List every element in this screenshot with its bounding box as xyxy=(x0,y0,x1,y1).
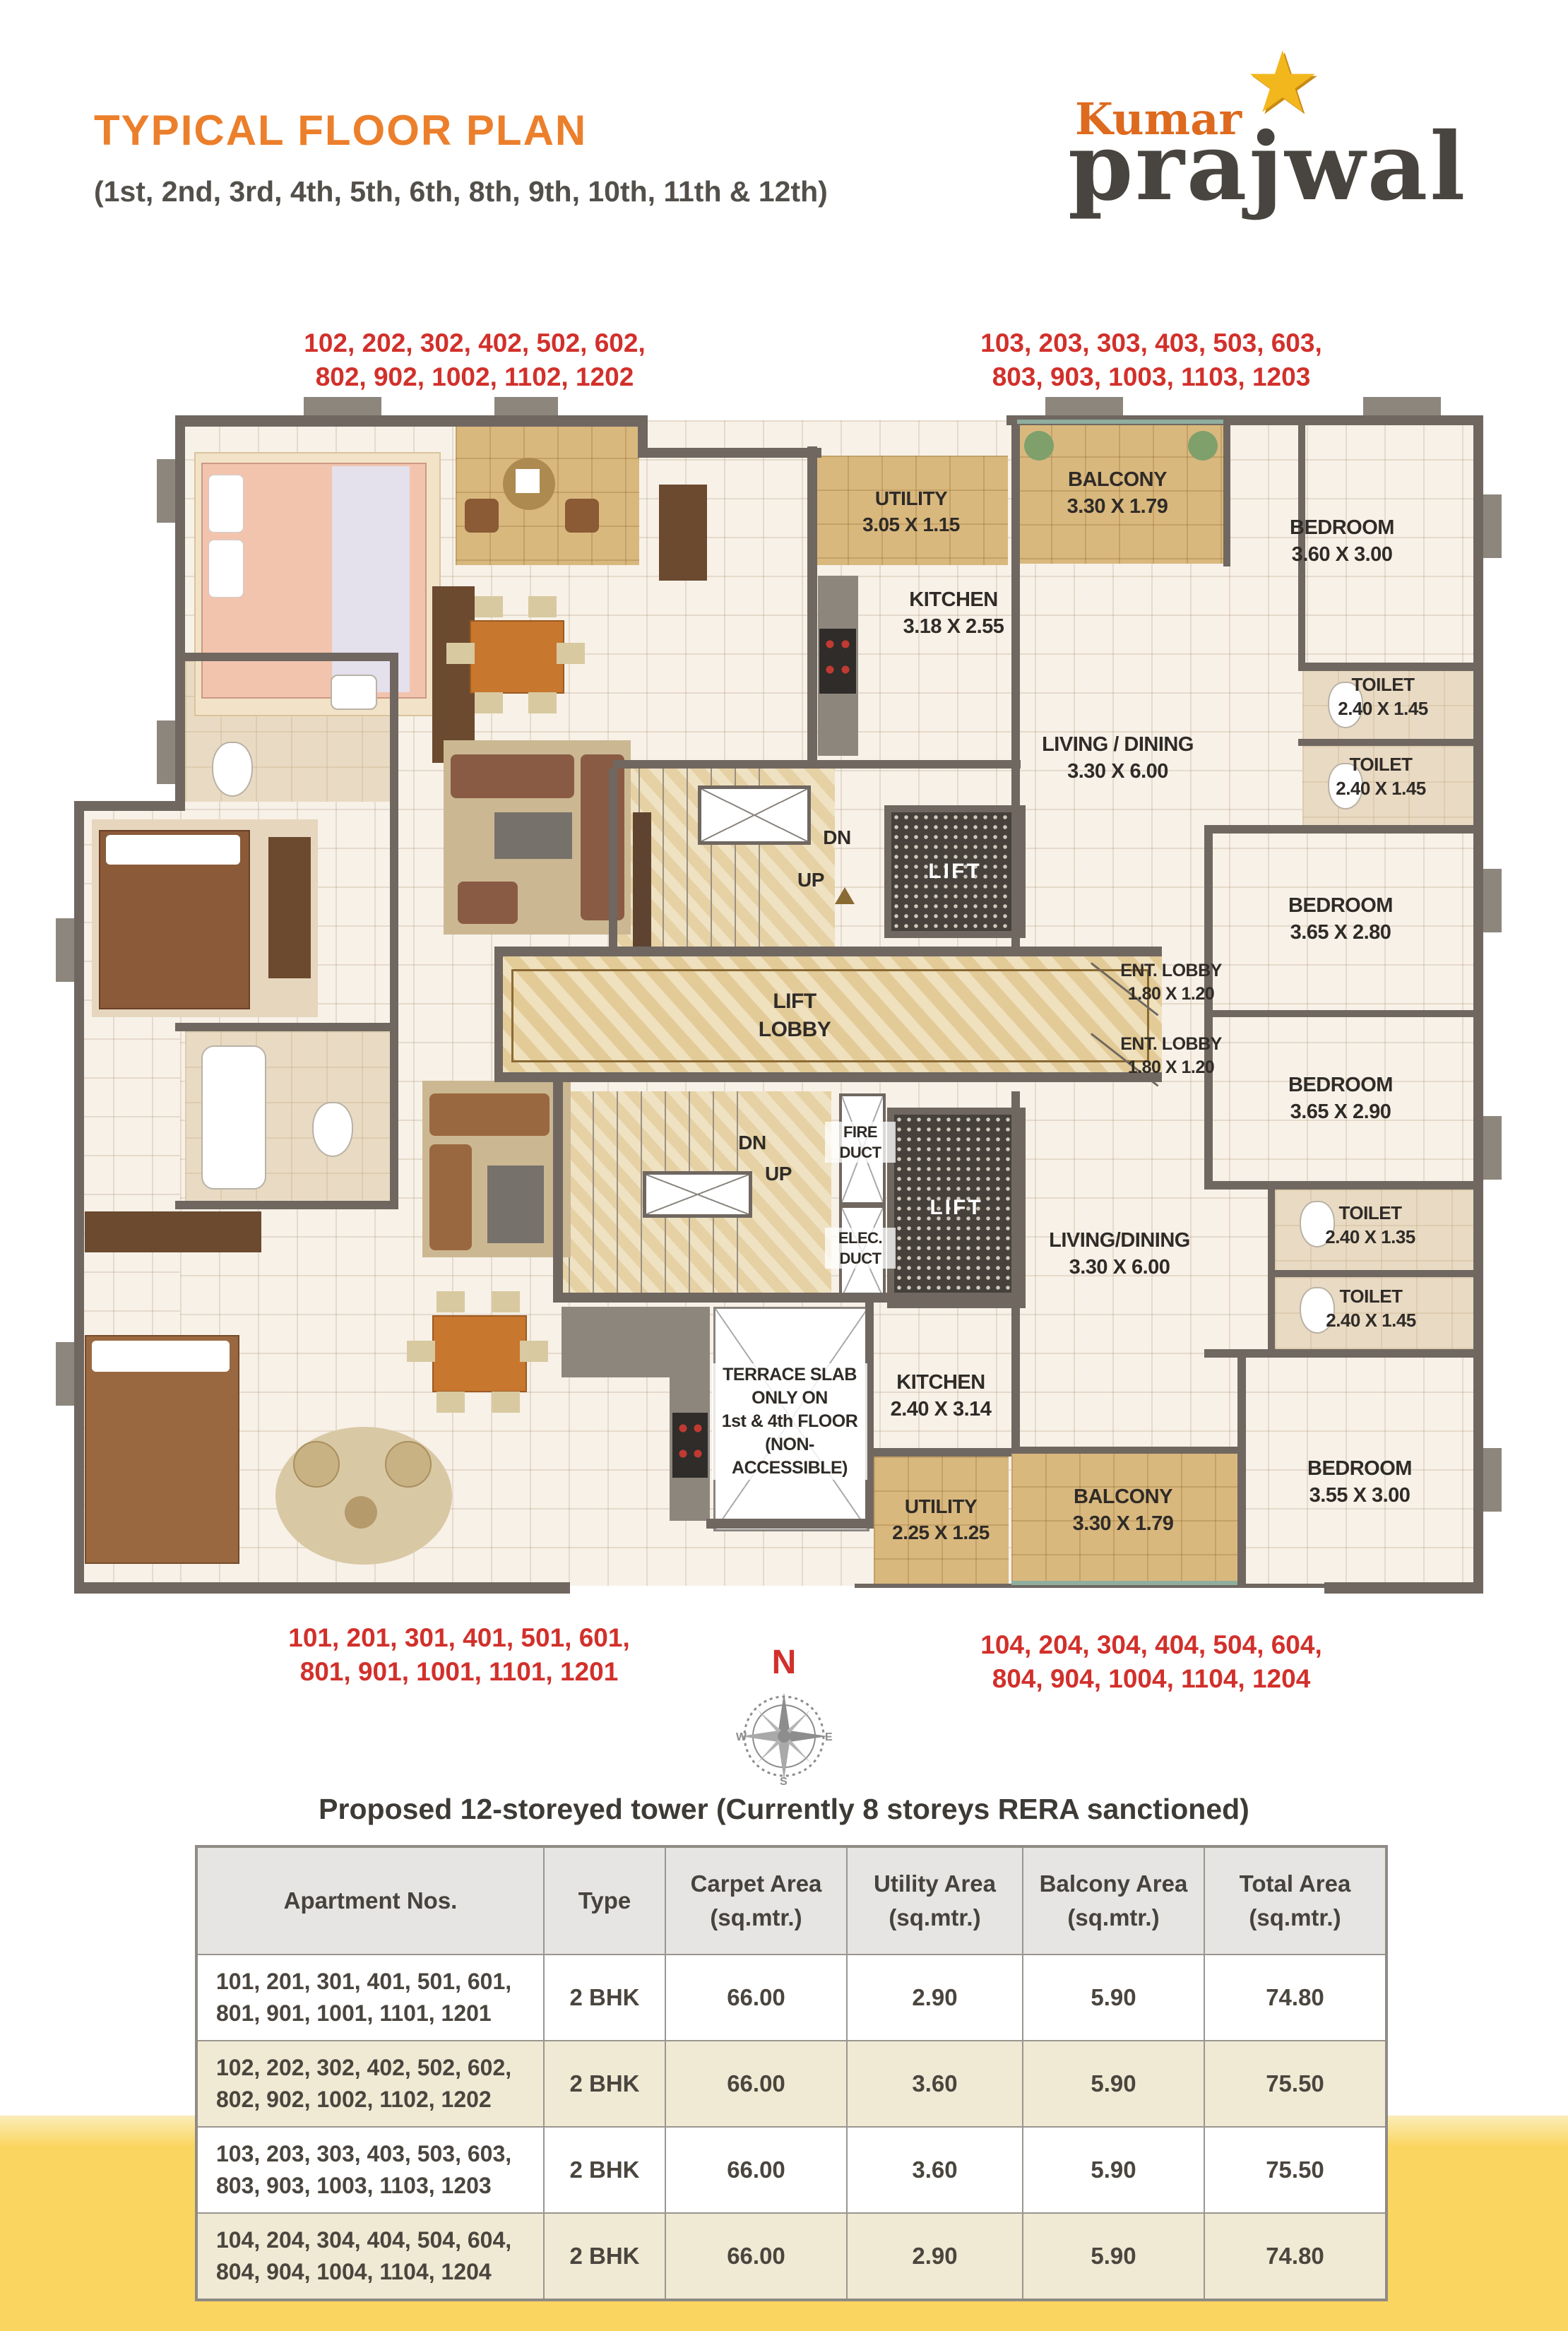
room-name: BEDROOM xyxy=(1271,1455,1448,1482)
wardrobe-icon xyxy=(85,1211,261,1252)
room-name: UTILITY xyxy=(823,486,999,512)
wall xyxy=(1204,1181,1482,1190)
cell-line: 104, 204, 304, 404, 504, 604, xyxy=(216,2224,511,2256)
terrace-slab-label: TERRACE SLAB ONLY ON 1st & 4th FLOOR (NO… xyxy=(712,1363,867,1480)
room-name: BALCONY xyxy=(1035,1483,1211,1510)
table-header-balcony: Balcony Area (sq.mtr.) xyxy=(1023,1848,1204,1954)
room-label-toilet-tr1: TOILET 2.40 X 1.45 xyxy=(1302,672,1464,721)
table-cell-apartments: 103, 203, 303, 403, 503, 603, 803, 903, … xyxy=(198,2128,543,2212)
room-name: LOBBY xyxy=(724,1016,865,1044)
wall xyxy=(706,1519,874,1529)
apartment-numbers-line: 102, 202, 302, 402, 502, 602, xyxy=(263,326,687,360)
window-sill xyxy=(157,720,175,784)
room-name: 1st & 4th FLOOR xyxy=(712,1410,867,1433)
table-cell-type: 2 BHK xyxy=(545,2214,665,2299)
wall xyxy=(1204,1349,1482,1358)
table-header-apartments: Apartment Nos. xyxy=(198,1848,543,1954)
table-cell-apartments: 102, 202, 302, 402, 502, 602, 802, 902, … xyxy=(198,2041,543,2126)
header-unit: (sq.mtr.) xyxy=(710,1901,802,1935)
room-name: FIRE xyxy=(825,1122,896,1142)
wall xyxy=(494,947,1162,956)
room-label-living-bottom: LIVING/DINING 3.30 X 6.00 xyxy=(1003,1227,1236,1281)
room-name: BEDROOM xyxy=(1252,892,1429,919)
apartment-numbers-line: 103, 203, 303, 403, 503, 603, xyxy=(939,326,1363,360)
room-name: ONLY ON xyxy=(712,1387,867,1410)
star-icon: ★ xyxy=(1245,34,1321,132)
apartment-numbers-top-left: 102, 202, 302, 402, 502, 602, 802, 902, … xyxy=(263,326,687,394)
wardrobe-icon xyxy=(268,837,311,978)
wall xyxy=(494,1072,1162,1082)
wall xyxy=(175,1023,398,1031)
wall xyxy=(1223,418,1230,567)
room-label-utility-top: UTILITY 3.05 X 1.15 xyxy=(823,486,999,538)
apartment-numbers-line: 104, 204, 304, 404, 504, 604, xyxy=(939,1628,1363,1662)
stair-dn-label: DN xyxy=(812,825,862,851)
area-table: Apartment Nos. Type Carpet Area (sq.mtr.… xyxy=(195,1845,1388,2301)
room-label-kitchen-bottom: KITCHEN 2.40 X 3.14 xyxy=(860,1369,1022,1423)
apartment-numbers-line: 802, 902, 1002, 1102, 1202 xyxy=(263,360,687,394)
plant-icon xyxy=(1188,431,1218,461)
wardrobe-icon xyxy=(432,586,475,763)
pillow-icon xyxy=(208,475,244,533)
room-dims: 3.18 X 2.55 xyxy=(865,613,1042,640)
room-label-ent-lobby-1: ENT. LOBBY 1.80 X 1.20 xyxy=(1097,959,1245,1006)
wall xyxy=(1204,825,1482,834)
chair-icon xyxy=(475,596,503,617)
lift-label: LIFT xyxy=(929,1196,982,1220)
room-name: UTILITY xyxy=(860,1494,1022,1520)
sink-icon xyxy=(331,675,377,710)
room-label-bedroom-r2: BEDROOM 3.65 X 2.80 xyxy=(1252,892,1429,947)
pillow-icon xyxy=(208,540,244,598)
wall xyxy=(1268,1270,1473,1277)
wall xyxy=(175,415,643,427)
armchair-icon xyxy=(458,882,518,924)
room-name: (NON-ACCESSIBLE) xyxy=(712,1433,867,1480)
apartment-numbers-line: 101, 201, 301, 401, 501, 601, xyxy=(247,1621,671,1655)
header-title: Type xyxy=(578,1884,631,1918)
cabinet-icon xyxy=(659,485,707,581)
wall xyxy=(175,653,398,661)
table-cell-total: 74.80 xyxy=(1205,1955,1385,2040)
window-sill xyxy=(304,397,381,415)
sofa-icon xyxy=(451,754,574,798)
window-sill xyxy=(157,459,175,523)
tv-unit-icon xyxy=(633,812,651,954)
wall xyxy=(553,1082,563,1303)
room-dims: 3.30 X 1.79 xyxy=(1029,493,1206,520)
sofa-icon xyxy=(429,1093,550,1136)
cell-line: 804, 904, 1004, 1104, 1204 xyxy=(216,2256,511,2288)
wall xyxy=(874,1448,1011,1457)
room-name: TOILET xyxy=(1289,1201,1451,1225)
stove-icon xyxy=(672,1413,708,1478)
table-cell-carpet: 66.00 xyxy=(666,2214,846,2299)
window-sill xyxy=(494,397,558,415)
room-name: ENT. LOBBY xyxy=(1097,959,1245,983)
room-label-kitchen-top: KITCHEN 3.18 X 2.55 xyxy=(865,586,1042,641)
table-cell-balcony: 5.90 xyxy=(1023,2041,1204,2126)
window-sill xyxy=(1483,869,1502,932)
brochure-page: TYPICAL FLOOR PLAN (1st, 2nd, 3rd, 4th, … xyxy=(0,0,1568,2331)
sofa-icon xyxy=(581,754,624,920)
window-sill xyxy=(1483,494,1502,558)
table-napkin xyxy=(516,469,540,493)
brand-prajwal: prajwal xyxy=(1068,119,1467,217)
room-dims: 1.80 X 1.20 xyxy=(1097,983,1245,1006)
stair-dn-label: DN xyxy=(727,1130,777,1156)
cell-line: 802, 902, 1002, 1102, 1202 xyxy=(216,2084,511,2116)
header-unit: (sq.mtr.) xyxy=(1067,1901,1159,1935)
wall xyxy=(1298,663,1473,671)
table-header-type: Type xyxy=(545,1848,665,1954)
stair-up-label: UP xyxy=(754,1161,803,1187)
table-cell-carpet: 66.00 xyxy=(666,2128,846,2212)
room-name: BALCONY xyxy=(1029,466,1206,493)
stair-up-label: UP xyxy=(786,867,836,894)
cell-line: 101, 201, 301, 401, 501, 601, xyxy=(216,1966,511,1998)
window-sill xyxy=(1483,1448,1502,1512)
wicker-chair-icon xyxy=(385,1441,432,1488)
wall xyxy=(638,448,821,458)
room-label-balcony-bottom: BALCONY 3.30 X 1.79 xyxy=(1035,1483,1211,1538)
table-cell-type: 2 BHK xyxy=(545,1955,665,2040)
header-title: Balcony Area xyxy=(1040,1867,1188,1901)
compass-east-label: E xyxy=(825,1731,833,1743)
room-label-bedroom-r3: BEDROOM 3.65 X 2.90 xyxy=(1252,1072,1429,1126)
page-title: TYPICAL FLOOR PLAN xyxy=(94,106,587,155)
room-label-toilet-tr2: TOILET 2.40 X 1.45 xyxy=(1300,752,1462,801)
apartment-numbers-top-right: 103, 203, 303, 403, 503, 603, 803, 903, … xyxy=(939,326,1363,394)
wall xyxy=(74,1582,570,1594)
room-label-bedroom-tr: BEDROOM 3.60 X 3.00 xyxy=(1254,514,1430,569)
room-name: BEDROOM xyxy=(1254,514,1430,541)
chair-icon xyxy=(436,1291,465,1312)
stair-landing xyxy=(698,785,811,845)
wall xyxy=(1011,1447,1237,1454)
room-dims: 3.30 X 1.79 xyxy=(1035,1510,1211,1537)
header-title: Carpet Area xyxy=(691,1867,822,1901)
wall xyxy=(74,801,185,811)
toilet-fixture-icon xyxy=(312,1102,353,1157)
room-name: DUCT xyxy=(825,1248,896,1269)
table-cell-utility: 3.60 xyxy=(848,2128,1022,2212)
round-table-icon xyxy=(345,1496,377,1529)
wall xyxy=(553,1293,1021,1303)
header-unit: (sq.mtr.) xyxy=(1249,1901,1341,1935)
wall xyxy=(494,947,503,1082)
room-dims: 3.60 X 3.00 xyxy=(1254,541,1430,568)
room-label-ent-lobby-2: ENT. LOBBY 1.80 X 1.20 xyxy=(1097,1033,1245,1079)
window-sill xyxy=(56,1342,74,1406)
wall xyxy=(1204,1010,1482,1017)
room-dims: 2.40 X 1.45 xyxy=(1300,776,1462,800)
room-dims: 3.65 X 2.90 xyxy=(1252,1098,1429,1125)
apartment-numbers-line: 803, 903, 1003, 1103, 1203 xyxy=(939,360,1363,394)
elec-duct-label: ELEC. DUCT xyxy=(825,1228,896,1269)
tower-caption: Proposed 12-storeyed tower (Currently 8 … xyxy=(0,1793,1568,1826)
room-name: LIVING / DINING xyxy=(1003,731,1233,758)
room-dims: 2.40 X 1.45 xyxy=(1290,1308,1452,1332)
header-unit: (sq.mtr.) xyxy=(889,1901,980,1935)
table-header-utility: Utility Area (sq.mtr.) xyxy=(848,1848,1022,1954)
room-name: TERRACE SLAB xyxy=(712,1363,867,1387)
apartment-numbers-bottom-right: 104, 204, 304, 404, 504, 604, 804, 904, … xyxy=(939,1628,1363,1696)
wall xyxy=(1237,1358,1246,1584)
room-name: DUCT xyxy=(825,1142,896,1163)
room-dims: 3.05 X 1.15 xyxy=(823,512,999,538)
room-name: TOILET xyxy=(1290,1284,1452,1308)
room-dims: 3.30 X 6.00 xyxy=(1003,758,1233,785)
fire-duct-label: FIRE DUCT xyxy=(825,1122,896,1163)
table-cell-apartments: 104, 204, 304, 404, 504, 604, 804, 904, … xyxy=(198,2214,543,2299)
table-cell-total: 75.50 xyxy=(1205,2128,1385,2212)
table-cell-utility: 2.90 xyxy=(848,2214,1022,2299)
table-cell-utility: 3.60 xyxy=(848,2041,1022,2126)
cell-line: 102, 202, 302, 402, 502, 602, xyxy=(216,2052,511,2084)
table-cell-balcony: 5.90 xyxy=(1023,2214,1204,2299)
window-sill xyxy=(1483,1116,1502,1180)
bathtub-icon xyxy=(201,1045,266,1190)
room-label-balcony-top: BALCONY 3.30 X 1.79 xyxy=(1029,466,1206,521)
room-dims: 2.40 X 1.45 xyxy=(1302,696,1464,720)
header-title: Total Area xyxy=(1240,1867,1351,1901)
cell-line: 801, 901, 1001, 1101, 1201 xyxy=(216,1998,511,2029)
table-cell-total: 75.50 xyxy=(1205,2041,1385,2126)
wall xyxy=(74,801,84,1594)
wall xyxy=(175,1201,398,1209)
room-name: ELEC. xyxy=(825,1228,896,1248)
wall xyxy=(1473,415,1483,1594)
pillow-icon xyxy=(92,1341,230,1372)
room-label-utility-bottom: UTILITY 2.25 X 1.25 xyxy=(860,1494,1022,1546)
sofa-icon xyxy=(429,1144,472,1250)
room-dims: 3.55 X 3.00 xyxy=(1271,1482,1448,1509)
coffee-table-icon xyxy=(494,812,572,859)
stair-landing xyxy=(643,1171,752,1218)
window-sill xyxy=(1045,397,1123,415)
page-subtitle: (1st, 2nd, 3rd, 4th, 5th, 6th, 8th, 9th,… xyxy=(94,175,828,208)
wall xyxy=(1324,1582,1483,1594)
room-label-toilet-br2: TOILET 2.40 X 1.45 xyxy=(1290,1284,1452,1333)
header-title: Apartment Nos. xyxy=(284,1884,458,1918)
toilet-fixture-icon xyxy=(212,742,253,797)
table-header-carpet: Carpet Area (sq.mtr.) xyxy=(666,1848,846,1954)
compass-south-label: S xyxy=(780,1776,788,1786)
table-cell-carpet: 66.00 xyxy=(666,2041,846,2126)
room-name: BEDROOM xyxy=(1252,1072,1429,1098)
wall xyxy=(1204,825,1213,1188)
apartment-numbers-bottom-left: 101, 201, 301, 401, 501, 601, 801, 901, … xyxy=(247,1621,671,1689)
room-name: KITCHEN xyxy=(865,586,1042,613)
compass-west-label: W xyxy=(736,1731,747,1743)
wall xyxy=(1011,415,1020,568)
wall xyxy=(609,769,617,947)
room-dims: 2.25 X 1.25 xyxy=(860,1520,1022,1546)
stair-arrow-icon xyxy=(835,887,855,904)
room-dims: 2.40 X 3.14 xyxy=(860,1396,1022,1423)
table-cell-total: 74.80 xyxy=(1205,2214,1385,2299)
apartment-numbers-line: 804, 904, 1004, 1104, 1204 xyxy=(939,1662,1363,1696)
room-dims: 2.40 X 1.35 xyxy=(1289,1225,1451,1249)
room-dims: 3.30 X 6.00 xyxy=(1003,1254,1236,1281)
room-name: ENT. LOBBY xyxy=(1097,1033,1245,1056)
window-sill xyxy=(56,918,74,982)
lift-label: LIFT xyxy=(928,860,981,884)
table-cell-utility: 2.90 xyxy=(848,1955,1022,2040)
compass-rose-icon: W E S xyxy=(735,1687,833,1786)
plant-icon xyxy=(1024,431,1054,461)
room-name: LIVING/DINING xyxy=(1003,1227,1236,1254)
room-label-lift-lobby: LIFT LOBBY xyxy=(724,987,865,1043)
coffee-table-icon xyxy=(487,1165,544,1243)
room-label-bedroom-br: BEDROOM 3.55 X 3.00 xyxy=(1271,1455,1448,1509)
apartment-numbers-line: 801, 901, 1001, 1101, 1201 xyxy=(247,1655,671,1689)
room-label-toilet-br1: TOILET 2.40 X 1.35 xyxy=(1289,1201,1451,1250)
table-cell-apartments: 101, 201, 301, 401, 501, 601, 801, 901, … xyxy=(198,1955,543,2040)
room-name: KITCHEN xyxy=(860,1369,1022,1396)
room-name: TOILET xyxy=(1302,672,1464,696)
balcony-railing xyxy=(1011,1581,1237,1585)
dining-table-icon xyxy=(470,620,564,694)
table-cell-balcony: 5.90 xyxy=(1023,2128,1204,2212)
room-label-living-top: LIVING / DINING 3.30 X 6.00 xyxy=(1003,731,1233,785)
cell-line: 103, 203, 303, 403, 503, 603, xyxy=(216,2138,511,2170)
lift-shaft-upper: LIFT xyxy=(884,805,1026,938)
wall xyxy=(390,653,398,1209)
table-cell-balcony: 5.90 xyxy=(1023,1955,1204,2040)
stove-icon xyxy=(819,629,856,694)
cell-line: 803, 903, 1003, 1103, 1203 xyxy=(216,2170,511,2202)
kitchen-counter xyxy=(562,1307,710,1377)
room-dims: 3.65 X 2.80 xyxy=(1252,919,1429,946)
wall xyxy=(807,446,817,769)
compass-north-label: N xyxy=(735,1643,833,1682)
room-name: LIFT xyxy=(724,987,865,1016)
window-sill xyxy=(1363,397,1441,415)
chair-icon xyxy=(565,499,599,533)
wicker-chair-icon xyxy=(293,1441,340,1488)
table-cell-type: 2 BHK xyxy=(545,2041,665,2126)
table-header-total: Total Area (sq.mtr.) xyxy=(1205,1848,1385,1954)
pillow-icon xyxy=(106,835,240,865)
dining-table-icon xyxy=(432,1315,527,1392)
table-cell-carpet: 66.00 xyxy=(666,1955,846,2040)
room-name: TOILET xyxy=(1300,752,1462,776)
header-title: Utility Area xyxy=(874,1867,996,1901)
chair-icon xyxy=(465,499,499,533)
wall xyxy=(175,415,185,811)
wall xyxy=(613,760,1021,769)
balcony-railing xyxy=(1017,420,1223,424)
wall xyxy=(1298,739,1473,746)
table-cell-type: 2 BHK xyxy=(545,2128,665,2212)
room-dims: 1.80 X 1.20 xyxy=(1097,1056,1245,1079)
